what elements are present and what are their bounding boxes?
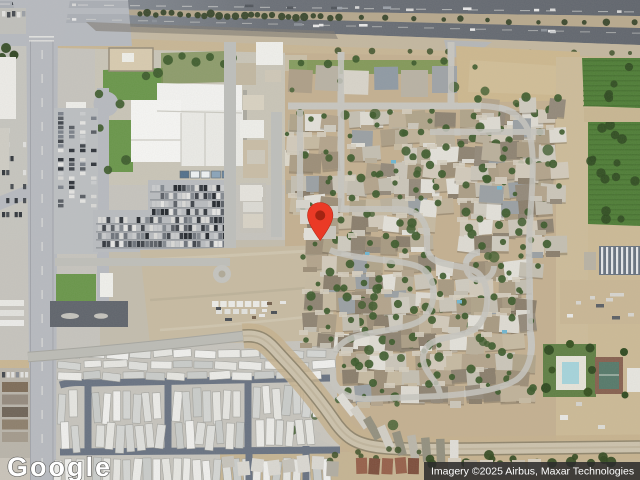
svg-text:Google: Google xyxy=(7,452,112,480)
svg-text:Imagery ©2025 Airbus, Maxar Te: Imagery ©2025 Airbus, Maxar Technologies xyxy=(431,466,634,478)
